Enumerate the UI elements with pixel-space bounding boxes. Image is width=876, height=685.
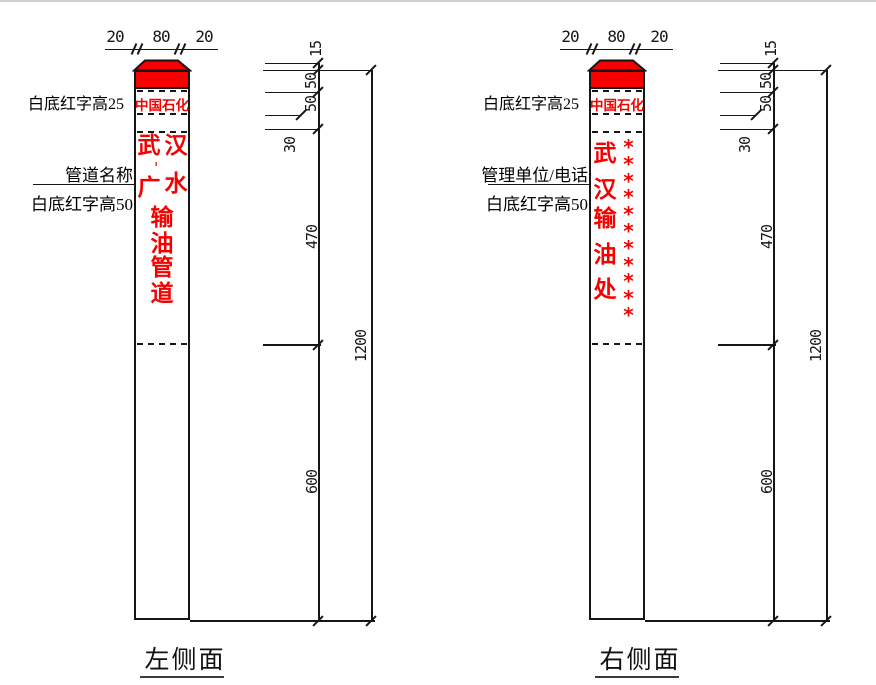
leader-line [488, 184, 589, 186]
view-caption: 右侧面 [570, 640, 710, 676]
phone-mask-star: * [621, 306, 636, 323]
dim-extension-line [265, 92, 320, 94]
pipeline-name-char: 输 [150, 206, 174, 230]
dim-top-80: 80 [599, 27, 633, 46]
dim-extension-line [265, 63, 318, 65]
dim-extension-line [720, 129, 775, 131]
dashed-line [592, 90, 642, 92]
dim-50-cap: 50 [757, 73, 775, 89]
dim-600-buried: 600 [758, 470, 776, 494]
pipeline-name-char: 汉 [164, 134, 188, 158]
caption-underline [595, 676, 679, 678]
top-dimension-line [105, 49, 218, 51]
dashed-line [137, 113, 187, 115]
pipeline-name-char: 武 [137, 134, 161, 158]
dim-470-text-area: 470 [303, 225, 321, 249]
ground-dashed-line [137, 343, 187, 345]
dim-extension-line [720, 115, 756, 117]
view-caption: 左侧面 [115, 640, 255, 676]
caption-underline [140, 676, 224, 678]
overall-dimension-line [371, 70, 373, 622]
ground-dashed-line [592, 343, 642, 345]
dim-470-text-area: 470 [758, 225, 776, 249]
dim-extension-line [645, 620, 830, 622]
pipeline-name-char: 道 [150, 282, 174, 306]
pipeline-name-dash: - [150, 158, 164, 171]
dim-15: 15 [762, 40, 780, 56]
dim-50-cap: 50 [302, 73, 320, 89]
pipeline-name-char: 油 [150, 232, 174, 256]
unit-name-char: 输 [593, 207, 617, 231]
unit-name-char: 汉 [593, 178, 617, 202]
dim-top-right-20: 20 [642, 27, 676, 46]
unit-name-char: 处 [593, 278, 617, 302]
pipeline-name-char: 水 [164, 172, 188, 196]
pointer-label: 管理单位/电话 [425, 161, 588, 186]
pipeline-name-char: 管 [150, 256, 174, 280]
cap-height-note: 白底红字高25 [0, 90, 124, 114]
left-side-view: 20 80 20 中国石化 武 汉 - 广 水 输 油 管 道 白底红字高25 … [0, 0, 421, 685]
post-red-band [589, 70, 645, 89]
dim-extension-line [718, 344, 776, 346]
top-dimension-line [560, 49, 673, 51]
dim-extension-line [720, 63, 773, 65]
dim-30-gap: 30 [281, 137, 299, 153]
dim-extension-line [265, 115, 301, 117]
brand-text: 中国石化 [590, 94, 644, 114]
dim-top-right-20: 20 [187, 27, 221, 46]
dim-600-buried: 600 [303, 470, 321, 494]
right-side-view: 20 80 20 中国石化 武 汉 输 油 处 * * * * * * * [455, 0, 876, 685]
pipeline-marker-drawing: 20 80 20 中国石化 武 汉 - 广 水 输 油 管 道 白底红字高25 … [0, 0, 876, 685]
dim-extension-line [720, 92, 775, 94]
dim-15: 15 [307, 40, 325, 56]
dim-1200-overall: 1200 [352, 330, 370, 362]
dim-top-left-20: 20 [98, 27, 132, 46]
dim-extension-line [190, 620, 375, 622]
dim-50-brand: 50 [302, 96, 320, 112]
dim-top-left-20: 20 [553, 27, 587, 46]
dim-1200-overall: 1200 [807, 330, 825, 362]
pipeline-name-char: 广 [137, 176, 161, 200]
dim-50-brand: 50 [757, 96, 775, 112]
leader-line [33, 184, 134, 186]
brand-text: 中国石化 [135, 94, 189, 114]
dim-extension-line [265, 129, 320, 131]
dim-top-80: 80 [144, 27, 178, 46]
overall-dimension-line [826, 70, 828, 622]
unit-name-char: 武 [593, 142, 617, 166]
pointer-note: 白底红字高50 [0, 190, 133, 215]
dashed-line [137, 90, 187, 92]
cap-height-note: 白底红字高25 [425, 90, 579, 114]
dim-extension-line [263, 344, 321, 346]
unit-name-char: 油 [593, 243, 617, 267]
phone-mask-column: * * * * * * * * * * * [621, 138, 636, 323]
pointer-note: 白底红字高50 [425, 190, 588, 215]
dashed-line [592, 131, 642, 133]
dashed-line [592, 113, 642, 115]
post-red-band [134, 70, 190, 89]
pointer-label: 管道名称 [0, 161, 133, 186]
dim-30-gap: 30 [736, 137, 754, 153]
